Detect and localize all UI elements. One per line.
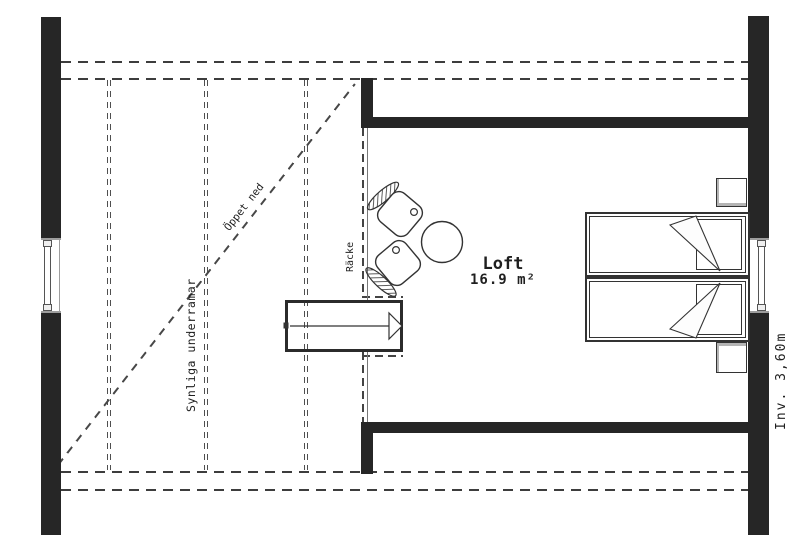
loft-wall-top-stub xyxy=(361,78,373,128)
room-name-label: Loft xyxy=(458,254,548,274)
left-window-jamb-bottom xyxy=(41,311,61,313)
room-area-label: 16.9 m² xyxy=(452,272,554,288)
roof-edge-dashed-line-bottom-2 xyxy=(61,489,748,491)
nightstand-bottom xyxy=(716,342,747,373)
rafter-line xyxy=(110,80,111,470)
staircase xyxy=(285,300,403,352)
rafter-line xyxy=(107,80,108,470)
chair-top xyxy=(364,179,426,240)
railing-line-upper xyxy=(367,128,368,300)
left-window-frame-block xyxy=(43,304,52,311)
right-window-frame-block xyxy=(757,240,766,247)
right-wall-lower xyxy=(748,312,769,535)
loft-floor-plan: Loft 16.9 m² Öppet ned Synliga underrama… xyxy=(0,0,800,555)
rafter-line xyxy=(307,80,308,470)
bed-top-pillow xyxy=(696,219,742,270)
right-wall-upper xyxy=(748,16,769,238)
rafter-line xyxy=(304,80,305,470)
railing-label: Räcke xyxy=(345,242,356,272)
chair-bottom xyxy=(363,237,424,300)
visible-underframes-label: Synliga underramar xyxy=(184,278,198,412)
round-table xyxy=(422,222,463,263)
right-window-glazing xyxy=(758,247,765,304)
loft-wall-top xyxy=(361,117,748,128)
railing-line-lower xyxy=(367,352,368,422)
roof-edge-dashed-line-bottom-1 xyxy=(61,471,748,473)
opening-edge-dashed-lower xyxy=(362,352,364,422)
opening-edge-dashed-below-stairs xyxy=(362,355,403,357)
nightstand-top xyxy=(716,178,747,207)
left-window-frame-block xyxy=(43,240,52,247)
loft-wall-bottom-stub xyxy=(361,422,373,474)
left-window-reveal-line xyxy=(59,240,60,311)
right-window-jamb-bottom xyxy=(748,311,769,313)
left-wall-upper xyxy=(41,17,61,238)
opening-edge-dashed-upper xyxy=(362,128,364,297)
right-window-frame-block xyxy=(757,304,766,311)
left-window-glazing xyxy=(44,247,51,304)
left-wall-lower xyxy=(41,313,61,535)
opening-edge-dashed-above-stairs xyxy=(362,296,403,298)
interior-dimension-label: Inv. 3,60m xyxy=(774,332,789,430)
roof-edge-dashed-line-top-2 xyxy=(61,78,748,80)
roof-edge-dashed-line-top-1 xyxy=(61,61,748,63)
loft-wall-bottom xyxy=(361,422,748,433)
bed-bottom-pillow xyxy=(696,284,742,335)
